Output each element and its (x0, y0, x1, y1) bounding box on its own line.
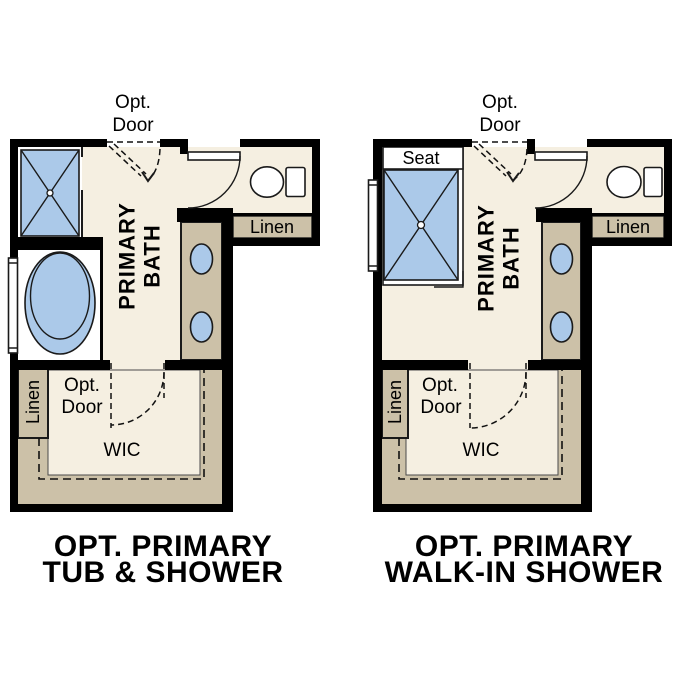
wall-segment (312, 139, 320, 246)
sink-icon (551, 244, 573, 274)
room-label-bath: BATH (140, 224, 165, 287)
wall-segment (581, 208, 592, 246)
wall-segment (240, 139, 320, 147)
wall-segment (592, 213, 664, 216)
linen-label: Linen (385, 380, 405, 424)
wall-segment (10, 504, 233, 512)
wall-segment (581, 246, 592, 512)
linen-label: Linen (606, 217, 650, 237)
wall-segment (222, 208, 233, 246)
wall-segment (177, 208, 223, 222)
door-leaf (535, 152, 587, 160)
room-label-primary: PRIMARY (474, 204, 499, 312)
window-icon (369, 180, 378, 271)
room-label-bath: BATH (499, 226, 524, 289)
opt-door-label: Door (479, 115, 521, 136)
wall-segment (10, 237, 103, 250)
toilet-tank (644, 168, 662, 197)
wic-label: WIC (463, 440, 500, 461)
sink-icon (191, 244, 213, 274)
wall-segment (527, 139, 535, 154)
wall-segment (528, 360, 592, 370)
toilet-tank (286, 168, 305, 197)
wall-segment (180, 139, 188, 154)
toilet-icon (251, 167, 284, 197)
shower-drain-icon (47, 190, 53, 196)
floorplan-canvas: Opt. Door PRIMARY BATH Linen Opt. Door L… (0, 0, 687, 687)
shower-drain-icon (418, 222, 425, 229)
wic-label: WIC (104, 440, 141, 461)
opt-door-label: Opt. (64, 375, 100, 396)
sink-icon (551, 312, 573, 342)
door-leaf (188, 152, 240, 160)
plan-walk-in-shower: Opt. Door Seat PRIMARY BATH Linen Opt. D… (369, 92, 673, 589)
floorplan-figure: Opt. Door PRIMARY BATH Linen Opt. Door L… (0, 0, 687, 687)
linen-label: Linen (250, 217, 294, 237)
wall-segment (373, 504, 592, 512)
room-label-primary: PRIMARY (115, 202, 140, 310)
seat-label: Seat (402, 148, 439, 168)
wall-segment (664, 139, 672, 246)
plan-tub-and-shower: Opt. Door PRIMARY BATH Linen Opt. Door L… (9, 92, 321, 589)
wall-segment (587, 139, 672, 147)
wall-segment (373, 360, 468, 370)
opt-door-label: Opt. (115, 92, 151, 113)
wall-segment (222, 238, 320, 246)
wall-segment (222, 246, 233, 512)
opt-door-label: Door (61, 397, 103, 418)
plan-caption: TUB & SHOWER (43, 556, 284, 589)
plan-caption: WALK-IN SHOWER (385, 556, 664, 589)
wall-segment (10, 360, 110, 370)
opt-door-label: Opt. (422, 375, 458, 396)
opt-door-label: Door (420, 397, 462, 418)
wall-segment (165, 360, 233, 370)
wall-segment (233, 213, 312, 216)
toilet-icon (607, 167, 641, 198)
wall-segment (100, 250, 103, 360)
wall-segment (160, 139, 180, 147)
wall-segment (373, 139, 472, 147)
opt-door-label: Opt. (482, 92, 518, 113)
sink-icon (191, 312, 213, 342)
wall-segment (581, 238, 672, 246)
wall-segment (10, 139, 107, 147)
window-icon (9, 258, 18, 353)
opt-door-label: Door (112, 115, 154, 136)
linen-label: Linen (23, 380, 43, 424)
wall-segment (536, 208, 582, 222)
